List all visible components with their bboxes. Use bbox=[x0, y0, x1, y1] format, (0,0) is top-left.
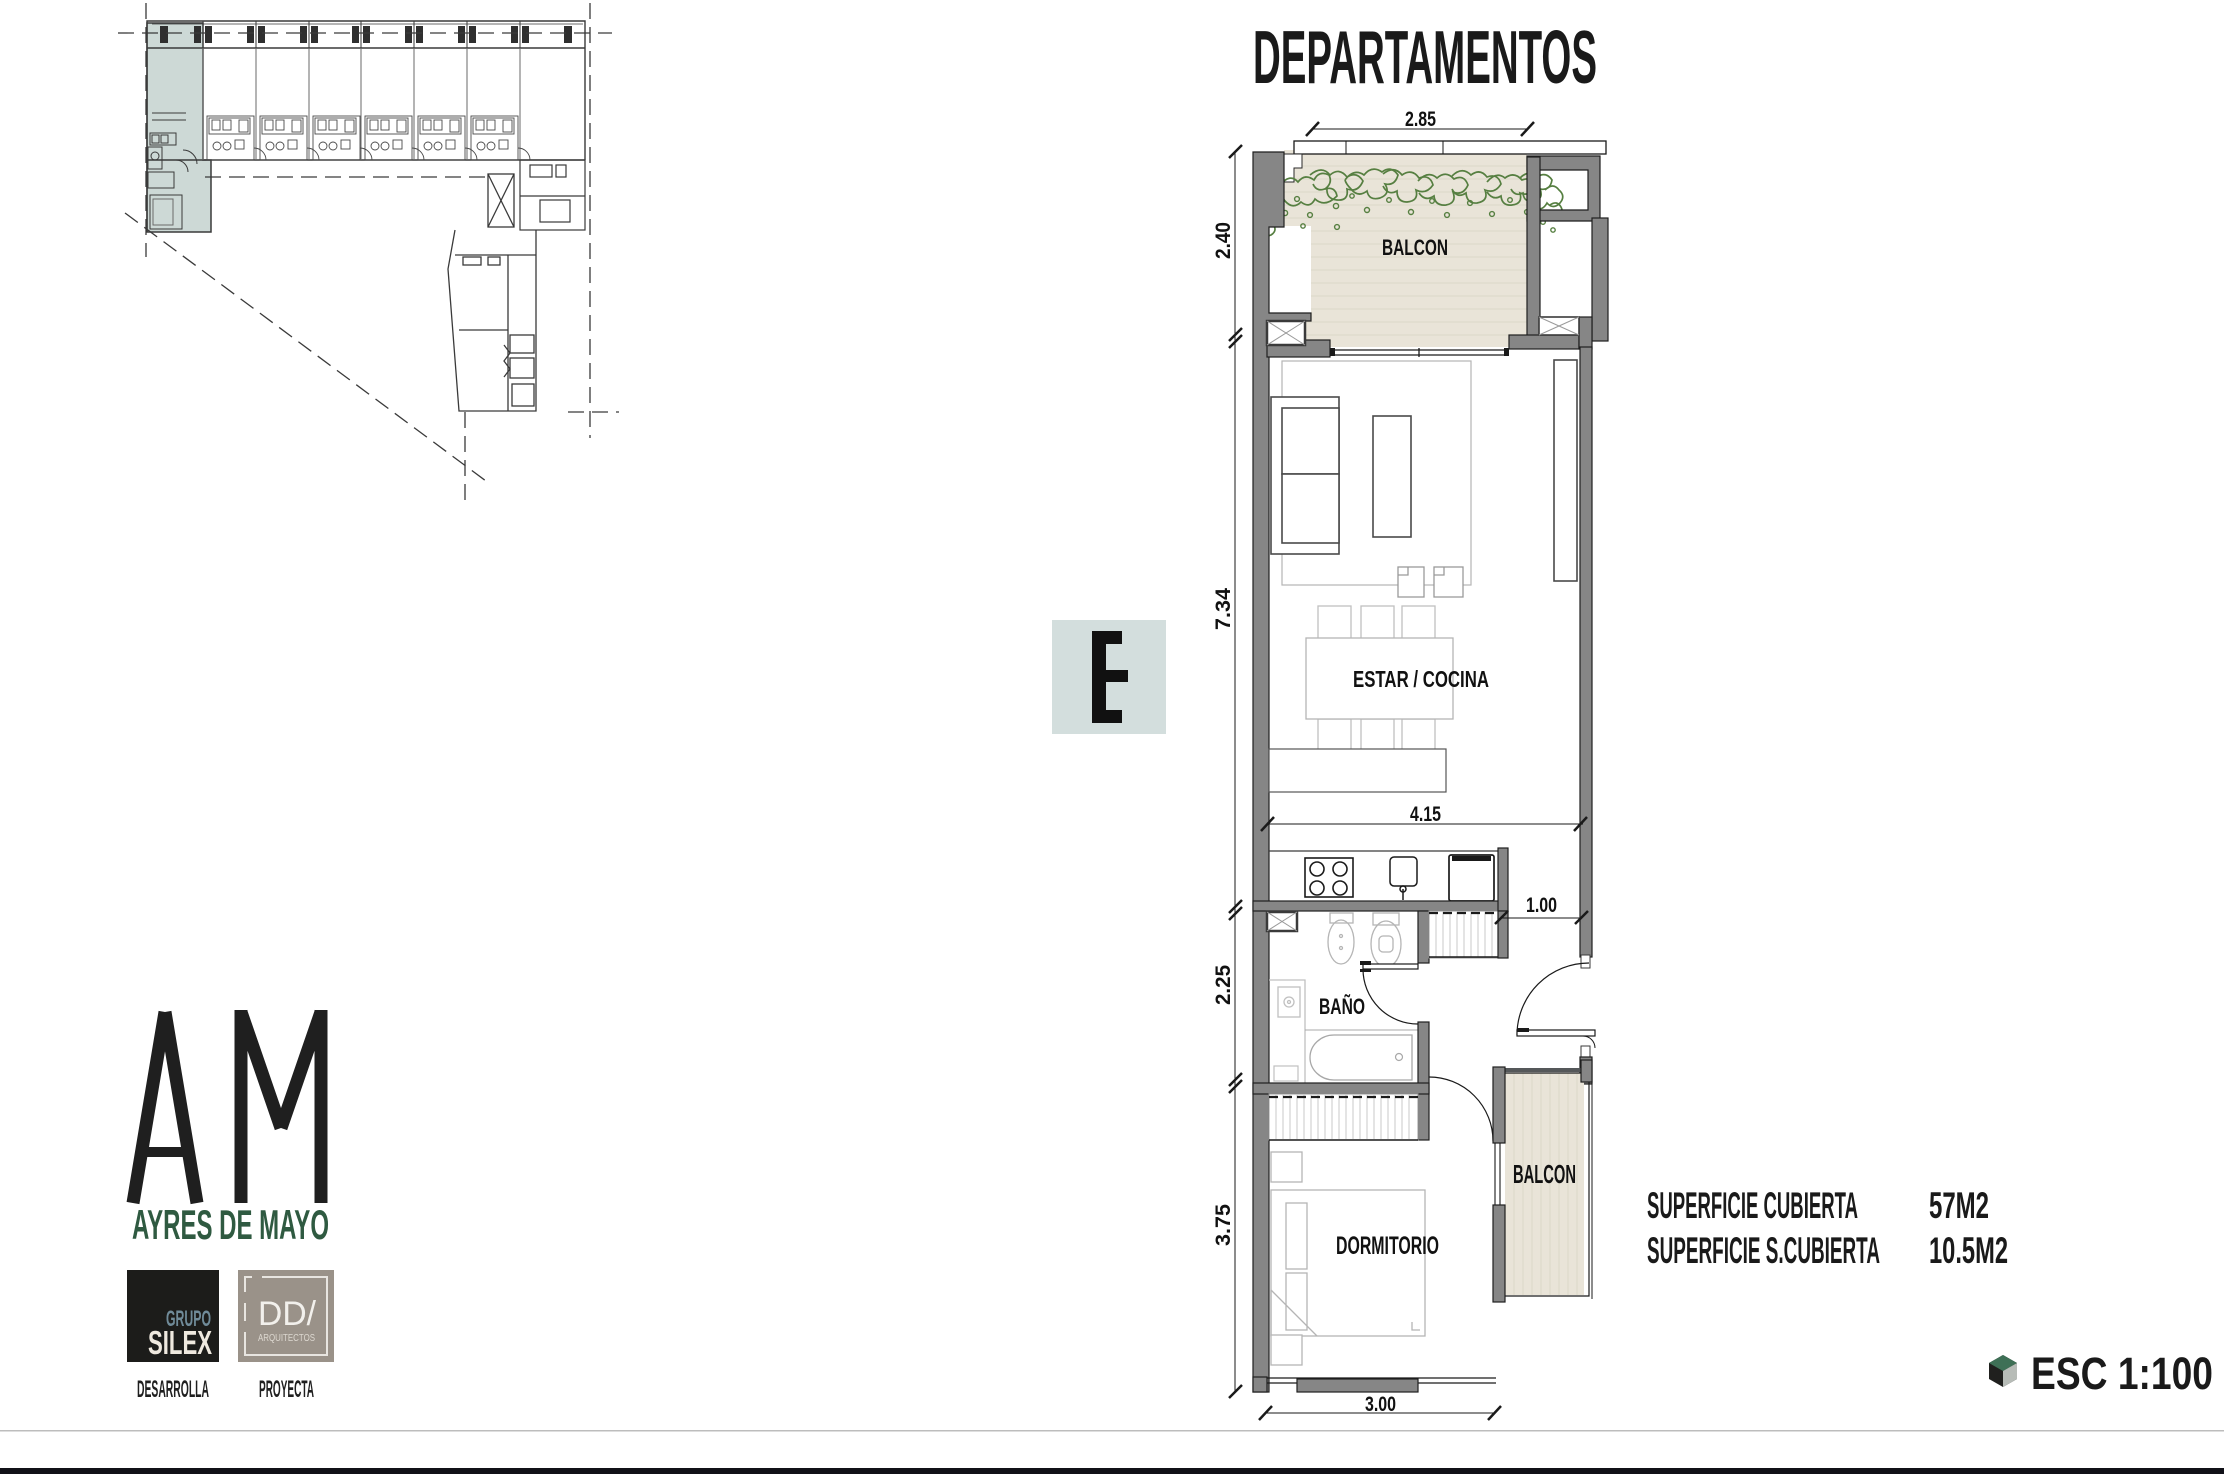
svg-text:BAÑO: BAÑO bbox=[1319, 994, 1365, 1019]
svg-text:10.5M2: 10.5M2 bbox=[1929, 1230, 2008, 1271]
svg-text:AYRES DE MAYO: AYRES DE MAYO bbox=[132, 1201, 329, 1248]
svg-text:2.85: 2.85 bbox=[1405, 108, 1436, 131]
svg-text:DESARROLLA: DESARROLLA bbox=[137, 1376, 209, 1403]
svg-text:SUPERFICIE CUBIERTA: SUPERFICIE CUBIERTA bbox=[1647, 1185, 1858, 1226]
svg-text:4.15: 4.15 bbox=[1410, 803, 1441, 826]
svg-text:PROYECTA: PROYECTA bbox=[259, 1376, 314, 1403]
svg-text:SUPERFICIE S.CUBIERTA: SUPERFICIE S.CUBIERTA bbox=[1647, 1230, 1880, 1271]
svg-text:ARQUITECTOS: ARQUITECTOS bbox=[258, 1333, 315, 1344]
svg-text:57M2: 57M2 bbox=[1929, 1185, 1989, 1226]
svg-text:2.40: 2.40 bbox=[1212, 222, 1235, 259]
svg-text:7.34: 7.34 bbox=[1212, 588, 1235, 630]
svg-text:SILEX: SILEX bbox=[148, 1324, 212, 1361]
svg-text:DEPARTAMENTOS: DEPARTAMENTOS bbox=[1253, 15, 1597, 99]
svg-text:ESTAR / COCINA: ESTAR / COCINA bbox=[1353, 666, 1489, 692]
svg-text:3.00: 3.00 bbox=[1365, 1393, 1396, 1416]
svg-text:1.00: 1.00 bbox=[1526, 894, 1557, 917]
svg-text:3.75: 3.75 bbox=[1212, 1204, 1235, 1246]
svg-text:2.25: 2.25 bbox=[1212, 965, 1235, 1005]
svg-text:ESC 1:100: ESC 1:100 bbox=[2031, 1348, 2213, 1399]
svg-text:BALCON: BALCON bbox=[1513, 1159, 1576, 1189]
svg-text:BALCON: BALCON bbox=[1382, 235, 1448, 260]
svg-text:DORMITORIO: DORMITORIO bbox=[1336, 1232, 1439, 1260]
svg-text:DD/: DD/ bbox=[258, 1295, 317, 1333]
